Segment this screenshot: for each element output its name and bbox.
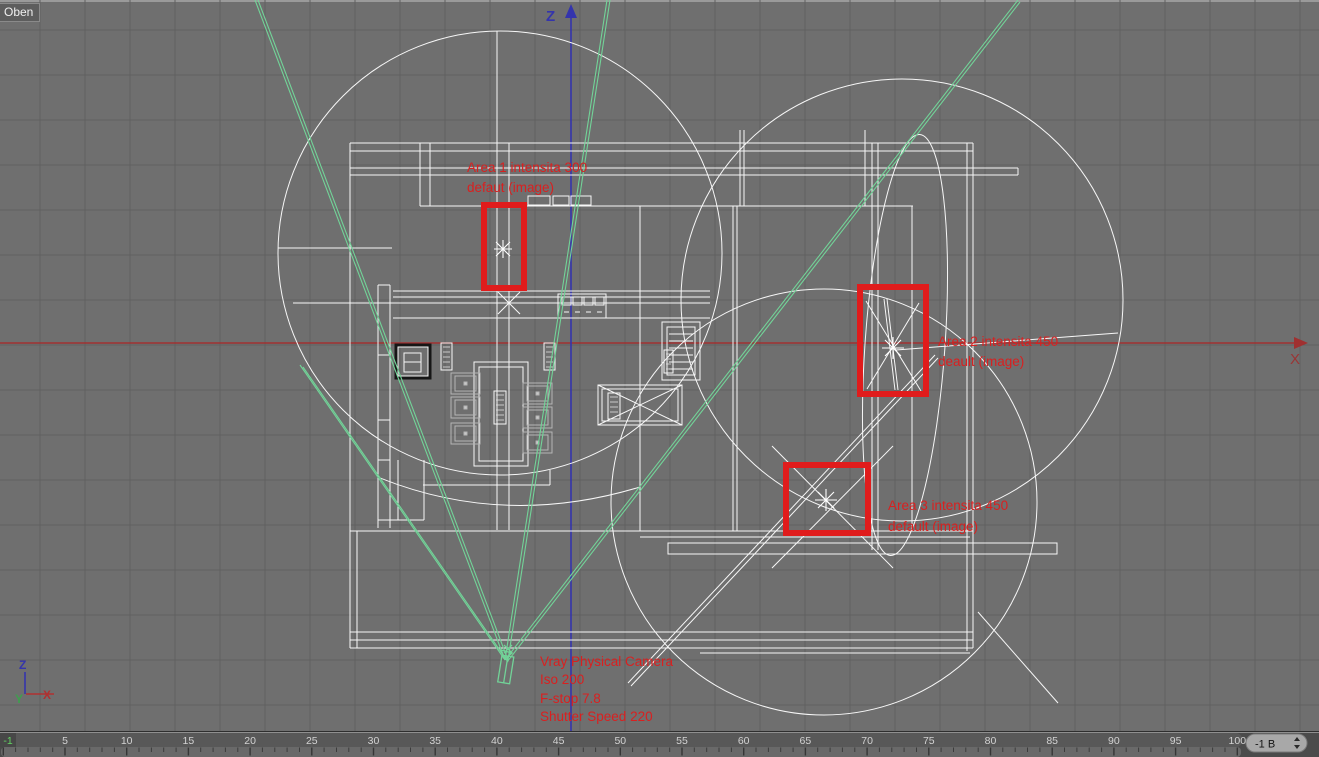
area-light-1-marker[interactable] — [494, 240, 512, 258]
scene-annotations: Area 1 intensita 300 defaut (image) Area… — [467, 160, 1058, 724]
annotation-area2-line2: deault (image) — [938, 354, 1024, 369]
frame-label: 95 — [1170, 735, 1182, 747]
frame-label: 55 — [676, 735, 688, 747]
frame-label: 5 — [62, 735, 68, 747]
axis-tripod: Z Y X — [15, 658, 54, 706]
frame-label: 60 — [738, 735, 750, 747]
frame-spinner[interactable]: -1 B — [1246, 734, 1307, 752]
annotation-camera-line2: Iso 200 — [540, 672, 584, 687]
grid-lines — [0, 30, 1319, 705]
tripod-z-label: Z — [19, 658, 26, 672]
frame-label: 80 — [985, 735, 997, 747]
viewport-canvas[interactable]: X Z — [0, 0, 1319, 733]
sink-appliance — [396, 345, 430, 378]
frame-label: 20 — [244, 735, 256, 747]
trackbar-separator-dark — [0, 731, 1319, 732]
z-axis-arrow-icon — [565, 4, 577, 18]
annotation-area2-line1: Area 2 intensita 450 — [938, 334, 1058, 349]
area-light-3-marker[interactable] — [815, 489, 837, 511]
tag-box — [494, 391, 506, 424]
frame-label: 75 — [923, 735, 935, 747]
tripod-x-label: X — [43, 688, 51, 702]
x-axis-arrow-icon — [1294, 337, 1308, 349]
frame-label: 10 — [121, 735, 133, 747]
frame-label: 70 — [861, 735, 873, 747]
current-frame-text: -1 — [3, 735, 12, 747]
viewport-name-label[interactable]: Oben — [0, 3, 40, 22]
annotation-area1-line1: Area 1 intensita 300 — [467, 160, 587, 175]
area-light-2-marker[interactable] — [882, 337, 904, 359]
annotation-area3-line1: Area 3 intensita 450 — [888, 498, 1008, 513]
frame-label: 45 — [553, 735, 565, 747]
frame-label: 40 — [491, 735, 503, 747]
frame-spinner-value: -1 B — [1255, 739, 1275, 751]
shelf-unit — [662, 322, 700, 380]
annotation-camera-line1: Vray Physical Camera — [540, 654, 674, 669]
frame-label: 50 — [614, 735, 626, 747]
tripod-y-label: Y — [15, 692, 23, 706]
dining-table — [474, 362, 528, 466]
annotation-area3-line2: default (image) — [888, 519, 978, 534]
light-markers[interactable] — [494, 240, 904, 511]
frame-label: 35 — [429, 735, 441, 747]
track-bar[interactable]: 5101520253035404550556065707580859095100… — [0, 731, 1319, 757]
frame-label: 85 — [1046, 735, 1058, 747]
annotation-camera-line3: F-stop 7.8 — [540, 691, 601, 706]
tag-text-marks — [443, 347, 450, 367]
annotation-area1-line2: defaut (image) — [467, 180, 554, 195]
frame-label: 25 — [306, 735, 318, 747]
area-light-gizmos — [628, 299, 1118, 686]
chair — [451, 423, 480, 444]
frame-label: 15 — [183, 735, 195, 747]
tag-text-marks — [610, 397, 618, 412]
chair — [523, 407, 552, 428]
frame-label: 100 — [1229, 735, 1247, 747]
ruler-major-ticks — [3, 748, 1237, 756]
frame-label: 65 — [800, 735, 812, 747]
chair — [451, 373, 480, 394]
chair — [451, 397, 480, 418]
chairs — [451, 373, 552, 453]
kitchen-fixtures — [278, 31, 710, 530]
z-axis-label: Z — [546, 8, 555, 25]
camera-frustum — [255, 0, 1020, 662]
max-viewport-window: X Z — [0, 0, 1319, 757]
south-wing — [640, 537, 1058, 703]
frame-label: 90 — [1108, 735, 1120, 747]
frame-label: 30 — [368, 735, 380, 747]
trackbar-separator-light — [0, 732, 1319, 733]
annotation-camera-line4: Shutter Speed 220 — [540, 709, 653, 724]
x-axis-label: X — [1290, 351, 1300, 368]
